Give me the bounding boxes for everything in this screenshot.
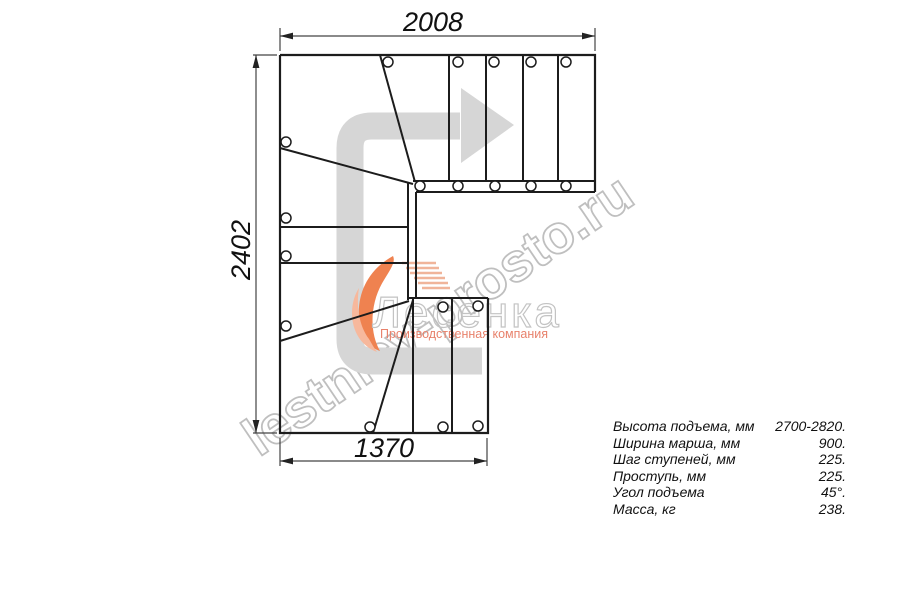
spec-label: Шаг ступеней, мм (613, 451, 736, 468)
spec-label: Угол подъема (613, 484, 705, 501)
spec-row: Ширина марша, мм 900. (613, 435, 846, 452)
spec-label: Высота подъема, мм (613, 418, 755, 435)
spec-value: 238. (819, 501, 846, 518)
spec-value: 45°. (821, 484, 846, 501)
spec-row: Проступь, мм 225. (613, 468, 846, 485)
stair-drawing-page: lestnicy-prosto.ru Лесенка Производствен… (0, 0, 900, 600)
spec-row: Высота подъема, мм 2700-2820. (613, 418, 846, 435)
dimension-left-value: 2402 (226, 220, 256, 281)
dimension-bottom-value: 1370 (354, 433, 414, 463)
spec-value: 225. (819, 468, 846, 485)
spec-value: 2700-2820. (775, 418, 846, 435)
spec-row: Шаг ступеней, мм 225. (613, 451, 846, 468)
spec-label: Проступь, мм (613, 468, 706, 485)
dimension-top-value: 2008 (402, 7, 463, 37)
spec-row: Масса, кг 238. (613, 501, 846, 518)
spec-label: Масса, кг (613, 501, 676, 518)
spec-table: Высота подъема, мм 2700-2820. Ширина мар… (613, 418, 846, 518)
spec-row: Угол подъема 45°. (613, 484, 846, 501)
direction-arrow-head (461, 88, 514, 163)
spec-label: Ширина марша, мм (613, 435, 740, 452)
spec-value: 900. (819, 435, 846, 452)
spec-value: 225. (819, 451, 846, 468)
